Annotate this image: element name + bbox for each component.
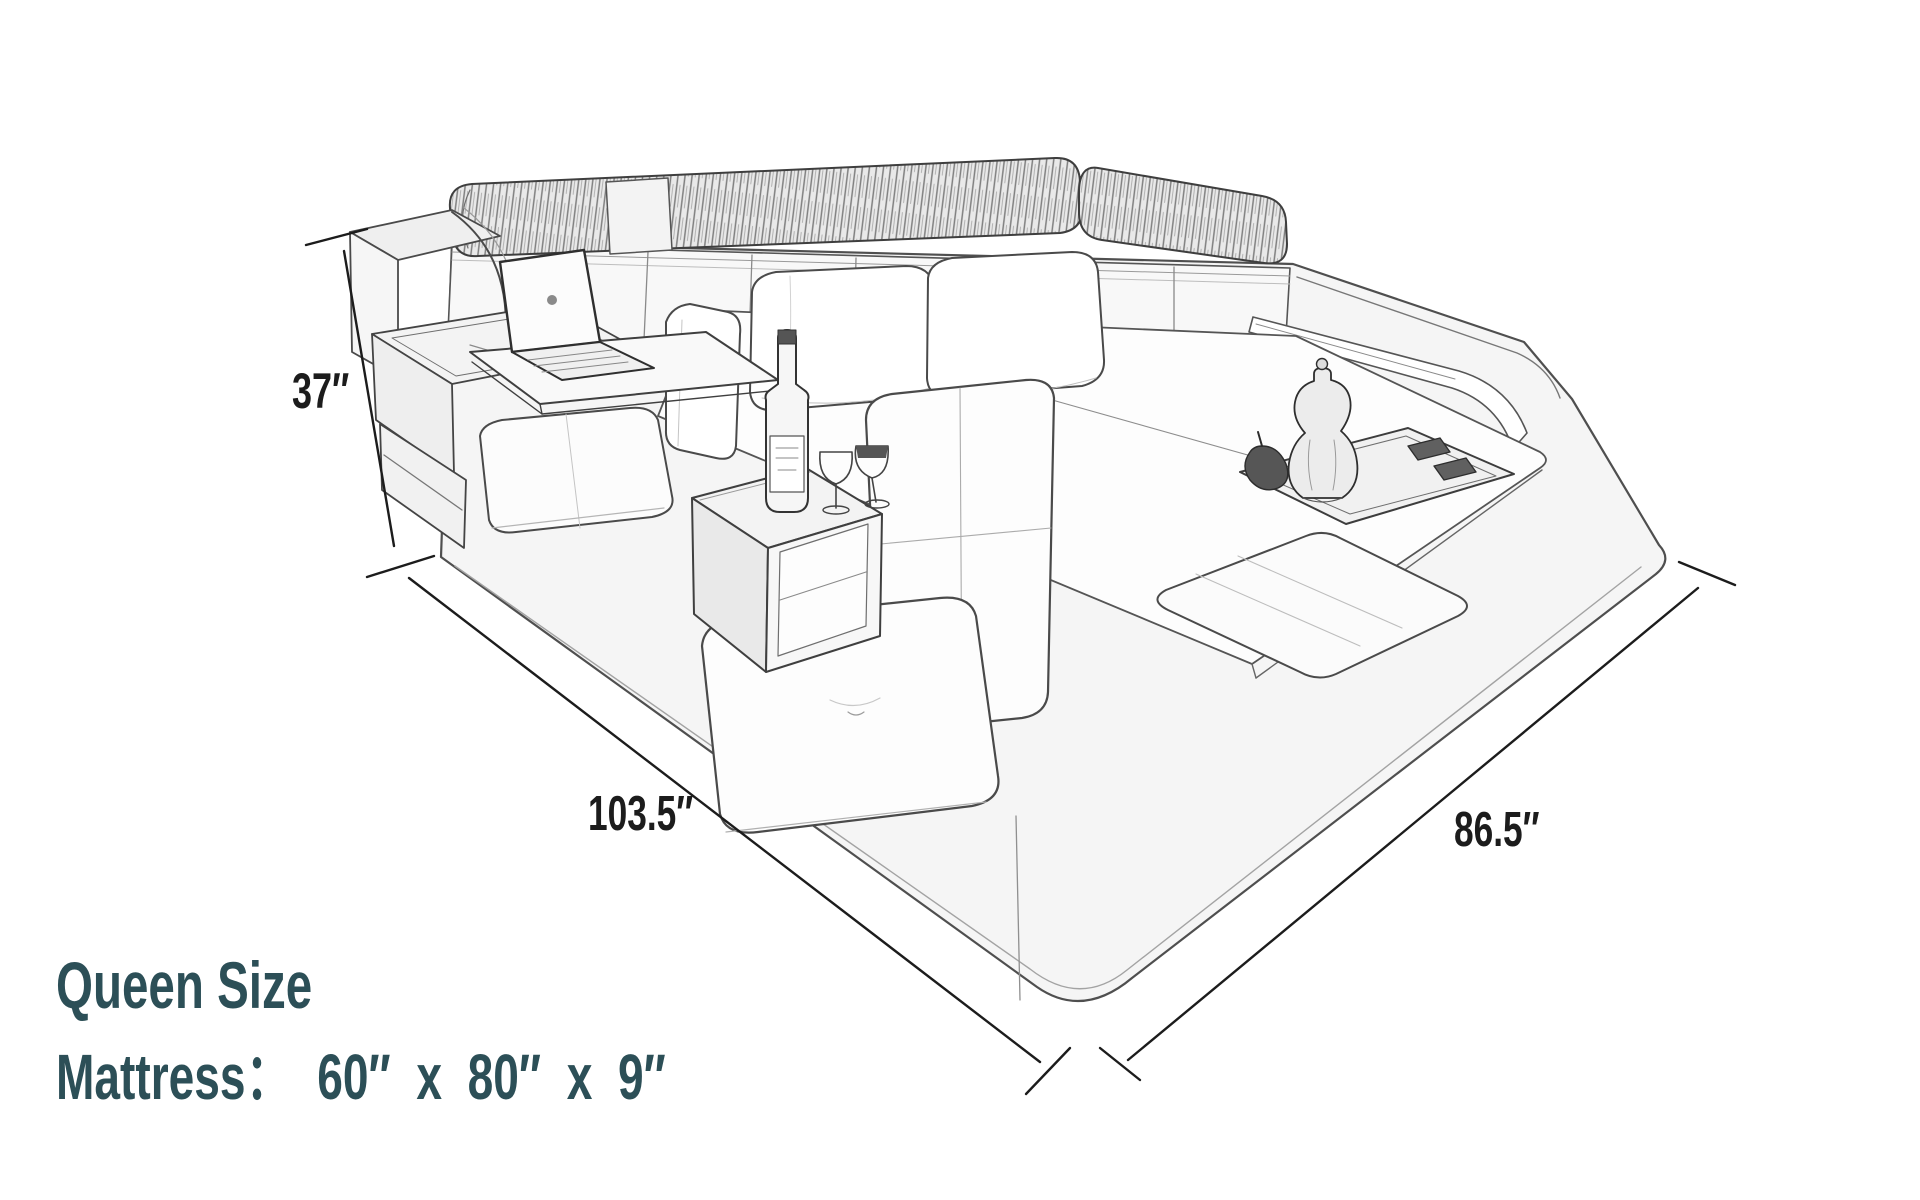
bottle-label: [770, 436, 804, 492]
size-title: Queen Size: [56, 952, 666, 1018]
left-seat-cushion: [480, 408, 673, 533]
corner-tick: [367, 556, 434, 577]
dimension-length-label: 103.5″: [588, 786, 693, 842]
width-tick-end: [1679, 562, 1735, 585]
caption-block: Queen Size Mattress： 60″ x 80″ x 9″: [56, 952, 666, 1109]
dimension-width-label: 86.5″: [1454, 802, 1540, 858]
width-tick-start: [1100, 1048, 1140, 1080]
laptop-logo: [547, 295, 557, 305]
dimension-height-label: 37″: [292, 362, 349, 420]
diagram-canvas: 37″ 103.5″ 86.5″ Queen Size Mattress： 60…: [0, 0, 1920, 1200]
headboard-bolsters: [450, 158, 1287, 263]
mattress-spec: Mattress： 60″ x 80″ x 9″: [56, 1045, 666, 1109]
bolster-strap: [606, 178, 672, 254]
